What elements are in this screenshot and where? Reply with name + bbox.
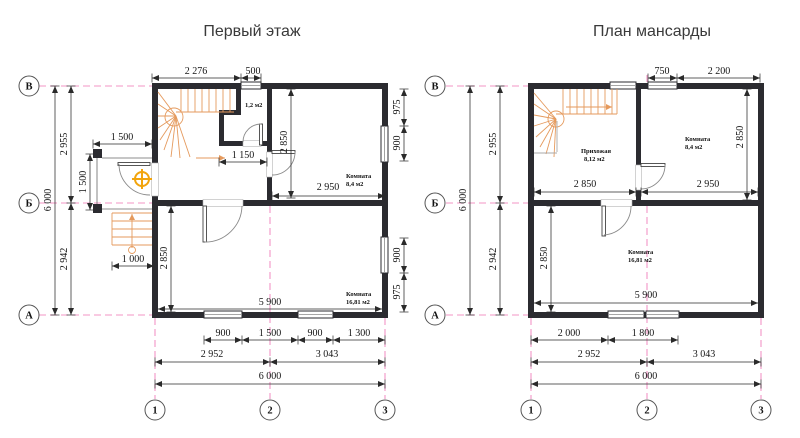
- room-name-label: Комната: [346, 291, 372, 298]
- window: [381, 126, 388, 162]
- dim-label: 900: [392, 248, 403, 263]
- window: [204, 311, 242, 318]
- window: [241, 82, 261, 89]
- dim-label: 2 850: [539, 247, 550, 270]
- room-area-label: 16,81 м2: [346, 299, 370, 306]
- axis-col-3: 3: [758, 406, 763, 417]
- attic-staircase: [534, 89, 617, 157]
- dim-label: 975: [392, 285, 403, 300]
- attic-doors: [601, 164, 665, 237]
- axis-row-b: Б: [26, 199, 33, 210]
- dim-label: 2 955: [488, 133, 499, 156]
- room-area-label: 8,4 м2: [685, 144, 702, 151]
- door-wc: [243, 124, 263, 147]
- lamp-icon: [132, 169, 152, 189]
- room-name-label: Комната: [346, 173, 372, 180]
- dim-label: 1 800: [632, 328, 655, 339]
- dim-label: 975: [392, 100, 403, 115]
- door-room-big: [601, 200, 632, 237]
- room-area-label: 1,2 м2: [245, 102, 262, 109]
- door-hall-room: [636, 164, 666, 191]
- window: [610, 82, 636, 89]
- dim-label: 2 850: [159, 247, 170, 270]
- axis-row-v: В: [25, 82, 32, 93]
- dim-label: 2 950: [317, 182, 340, 193]
- outside-steps: [112, 213, 152, 254]
- axis-row-v: В: [431, 82, 438, 93]
- dim-label: 1 000: [122, 254, 145, 265]
- attic-plan: План мансарды: [425, 23, 771, 420]
- floor1-title: Первый этаж: [203, 23, 301, 40]
- dim-label: 1 150: [232, 150, 255, 161]
- floor1-walls: [152, 83, 388, 318]
- dim-label: 900: [392, 136, 403, 151]
- door-room-big: [203, 200, 243, 243]
- dim-label: 500: [246, 66, 261, 77]
- dim-label: 2 955: [59, 133, 70, 156]
- attic-title: План мансарды: [593, 23, 711, 40]
- dim-label: 2 850: [735, 126, 746, 149]
- dim-label: 2 850: [279, 131, 290, 154]
- window: [648, 82, 677, 89]
- dim-label: 2 200: [708, 66, 731, 77]
- axis-row-b: Б: [432, 199, 439, 210]
- window: [298, 311, 333, 318]
- room-area-label: 8,12 м2: [584, 156, 605, 163]
- dim-label: 2 950: [697, 179, 720, 190]
- dim-label: 3 043: [316, 349, 339, 360]
- dim-label: 3 043: [693, 349, 716, 360]
- axis-row-a: А: [25, 311, 33, 322]
- dim-label: 2 942: [59, 248, 70, 271]
- dim-label: 2 000: [558, 328, 581, 339]
- axis-col-1: 1: [152, 406, 157, 417]
- dim-label: 5 900: [635, 290, 658, 301]
- room-name-label: Прихожая: [581, 148, 611, 155]
- dim-label: 1 500: [259, 328, 282, 339]
- dim-label: 5 900: [259, 297, 282, 308]
- window: [646, 311, 679, 318]
- axis-col-2: 2: [267, 406, 272, 417]
- room-area-label: 16,81 м2: [628, 257, 652, 264]
- dim-label: 2 850: [574, 179, 597, 190]
- room-name-label: Комната: [685, 136, 711, 143]
- window: [608, 311, 644, 318]
- dim-label: 2 952: [201, 349, 224, 360]
- floorplan-drawing: Первый этаж: [0, 0, 800, 438]
- window: [381, 237, 388, 273]
- dim-label: 900: [216, 328, 231, 339]
- axis-col-2: 2: [644, 406, 649, 417]
- dim-label: 750: [655, 66, 670, 77]
- room-area-label: 8,4 м2: [346, 181, 363, 188]
- floorplan-sheet: Первый этаж: [0, 0, 800, 438]
- axis-row-a: А: [431, 311, 439, 322]
- attic-walls: [528, 83, 764, 318]
- dim-label: 6 000: [458, 189, 469, 212]
- dim-label: 900: [308, 328, 323, 339]
- dim-label: 6 000: [43, 189, 54, 212]
- dim-label: 6 000: [259, 371, 282, 382]
- dim-label: 1 300: [348, 328, 371, 339]
- axis-col-1: 1: [528, 406, 533, 417]
- axis-col-3: 3: [382, 406, 387, 417]
- dim-label: 2 276: [185, 66, 208, 77]
- dim-label: 2 952: [578, 349, 601, 360]
- dim-label: 1 500: [111, 132, 134, 143]
- attic-axis-bubbles: В Б А 1 2 3: [425, 76, 771, 420]
- floor1-axis-bubbles: В Б А 1 2 3: [19, 76, 395, 420]
- room-name-label: Комната: [628, 249, 654, 256]
- floor1-plan: Первый этаж: [19, 23, 409, 420]
- dim-label: 2 942: [488, 248, 499, 271]
- dim-label: 1 500: [78, 171, 89, 194]
- dim-label: 6 000: [635, 371, 658, 382]
